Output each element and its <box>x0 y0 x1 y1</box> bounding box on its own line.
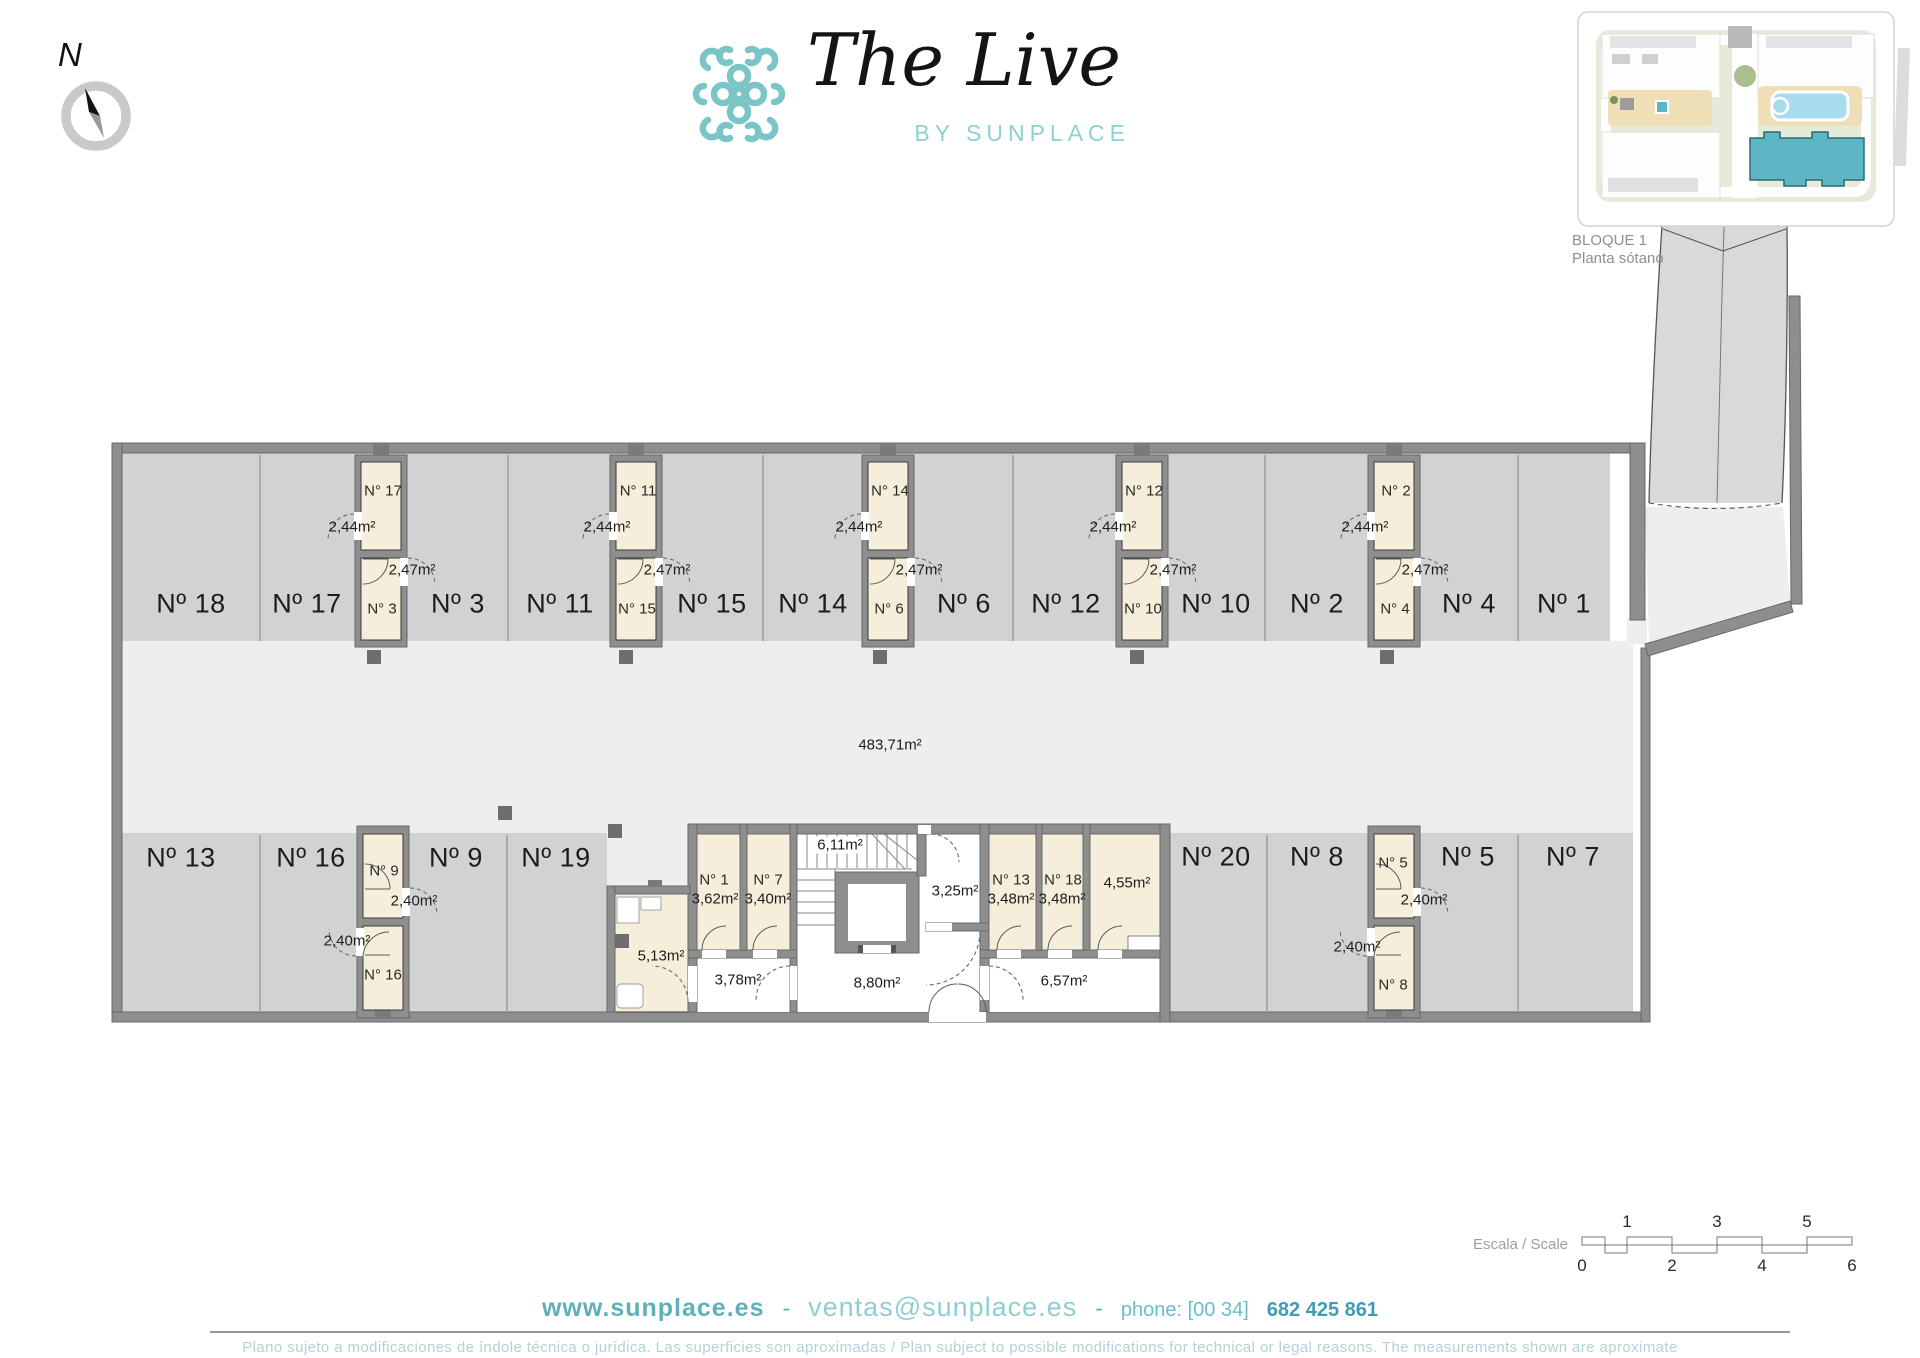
parking-space-label: Nº 5 <box>1441 842 1495 873</box>
parking-space-label: Nº 13 <box>146 843 215 874</box>
parking-space-label: Nº 9 <box>429 843 483 874</box>
scale-tick: 2 <box>1667 1256 1676 1276</box>
elevator <box>835 872 919 953</box>
footer-phone-number: 682 425 861 <box>1267 1299 1378 1322</box>
scale-tick: 4 <box>1757 1256 1766 1276</box>
room-area-label: 3,25m² <box>932 883 979 900</box>
storage-room-area: 2,44m² <box>1090 519 1137 536</box>
parking-space-label: Nº 14 <box>778 589 847 620</box>
storage-room-area: 3,62m² <box>692 891 739 908</box>
inset-caption-block: BLOQUE 1 Planta sótano <box>1572 232 1664 268</box>
storage-room-area: 2,40m² <box>1334 939 1381 956</box>
room-area-label: 5,13m² <box>638 948 685 965</box>
storage-room-number: N° 17 <box>364 483 402 500</box>
storage-room-area: 2,44m² <box>1342 519 1389 536</box>
lobby-area-label: 8,80m² <box>854 975 901 992</box>
footer-divider <box>210 1331 1790 1333</box>
storage-room-number: N° 9 <box>369 863 398 880</box>
storage-room-area: 2,40m² <box>391 893 438 910</box>
scale-label: Escala / Scale <box>1473 1236 1568 1253</box>
ramp <box>1649 225 1787 509</box>
storage-room-number: N° 15 <box>618 601 656 618</box>
north-compass-icon <box>50 72 160 172</box>
parking-space-label: Nº 8 <box>1290 842 1344 873</box>
inset-caption-line1: BLOQUE 1 <box>1572 232 1664 250</box>
logo-knot-icon <box>690 42 788 146</box>
storage-room-number: N° 13 <box>992 872 1030 889</box>
footer-separator: - <box>782 1295 790 1322</box>
brand-name: The Live <box>807 18 1121 102</box>
corridor-area-label: 6,57m² <box>1041 973 1088 990</box>
storage-room-number: N° 12 <box>1125 483 1163 500</box>
corridor-area-label: 3,78m² <box>715 972 762 989</box>
storage-room-area: 2,47m² <box>1150 562 1197 579</box>
parking-space-label: Nº 12 <box>1031 589 1100 620</box>
parking-space-label: Nº 16 <box>276 843 345 874</box>
page: N The Live BY SUNPLACE <box>0 0 1920 1358</box>
parking-space-label: Nº 2 <box>1290 589 1344 620</box>
storage-room-number: N° 5 <box>1378 855 1407 872</box>
core-block <box>607 824 1170 1022</box>
scale-tick: 5 <box>1802 1212 1811 1232</box>
parking-space-label: Nº 6 <box>937 589 991 620</box>
stairs-area-label: 6,11m² <box>814 837 866 854</box>
parking-space-label: Nº 18 <box>156 589 225 620</box>
storage-room-number: N° 3 <box>367 601 396 618</box>
storage-room-area: 2,40m² <box>1401 892 1448 909</box>
parking-space-label: Nº 7 <box>1546 842 1600 873</box>
storage-room-number: N° 18 <box>1044 872 1082 889</box>
parking-space-label: Nº 15 <box>677 589 746 620</box>
footer-separator: - <box>1095 1295 1103 1322</box>
storage-room-number: N° 14 <box>871 483 909 500</box>
parking-space-label: Nº 4 <box>1442 589 1496 620</box>
footer-website-link[interactable]: www.sunplace.es <box>542 1294 764 1323</box>
storage-room-area: 4,55m² <box>1104 875 1151 892</box>
site-map-inset <box>1572 6 1916 232</box>
storage-room-number: N° 4 <box>1380 601 1409 618</box>
parking-space-label: Nº 3 <box>431 589 485 620</box>
storage-room-area: 2,47m² <box>1402 562 1449 579</box>
scale-tick: 6 <box>1847 1256 1856 1276</box>
storage-room-area: 2,44m² <box>329 519 376 536</box>
scale-tick: 3 <box>1712 1212 1721 1232</box>
storage-room-number: N° 8 <box>1378 977 1407 994</box>
storage-room-number: N° 11 <box>620 483 657 500</box>
storage-room-area: 2,47m² <box>644 562 691 579</box>
storage-room-area: 2,44m² <box>836 519 883 536</box>
parking-space-label: Nº 20 <box>1181 842 1250 873</box>
storage-room-area: 3,48m² <box>988 891 1035 908</box>
footer: www.sunplace.es - ventas@sunplace.es - p… <box>0 1292 1920 1323</box>
storage-room-number: N° 1 <box>699 872 728 889</box>
parking-space-label: Nº 11 <box>526 589 593 620</box>
scale-bar <box>1582 1237 1852 1253</box>
storage-room-number: N° 6 <box>874 601 903 618</box>
footer-phone-label: phone: [00 34] <box>1121 1299 1249 1322</box>
storage-room-area: 3,40m² <box>745 891 792 908</box>
parking-space-label: Nº 10 <box>1181 589 1250 620</box>
storage-room-area: 2,40m² <box>324 933 371 950</box>
aisle-area-label: 483,71m² <box>858 737 921 754</box>
brand-tagline: BY SUNPLACE <box>914 120 1130 147</box>
scale-tick: 0 <box>1577 1256 1586 1276</box>
storage-room-number: N° 2 <box>1381 483 1410 500</box>
storage-room-area: 2,47m² <box>896 562 943 579</box>
disclaimer-text: Plano sujeto a modificaciones de índole … <box>0 1339 1920 1356</box>
storage-room-number: N° 16 <box>364 967 402 984</box>
parking-space-label: Nº 19 <box>521 843 590 874</box>
parking-space-label: Nº 1 <box>1537 589 1591 620</box>
north-label: N <box>58 36 82 74</box>
storage-room-number: N° 10 <box>1124 601 1162 618</box>
storage-room-area: 2,44m² <box>584 519 631 536</box>
storage-room-number: N° 7 <box>753 872 782 889</box>
parking-space-label: Nº 17 <box>272 589 341 620</box>
footer-email-link[interactable]: ventas@sunplace.es <box>808 1292 1077 1323</box>
storage-room-area: 2,47m² <box>389 562 436 579</box>
scale-tick: 1 <box>1622 1212 1631 1232</box>
storage-room-area: 3,48m² <box>1039 891 1086 908</box>
inset-caption-line2: Planta sótano <box>1572 250 1664 268</box>
